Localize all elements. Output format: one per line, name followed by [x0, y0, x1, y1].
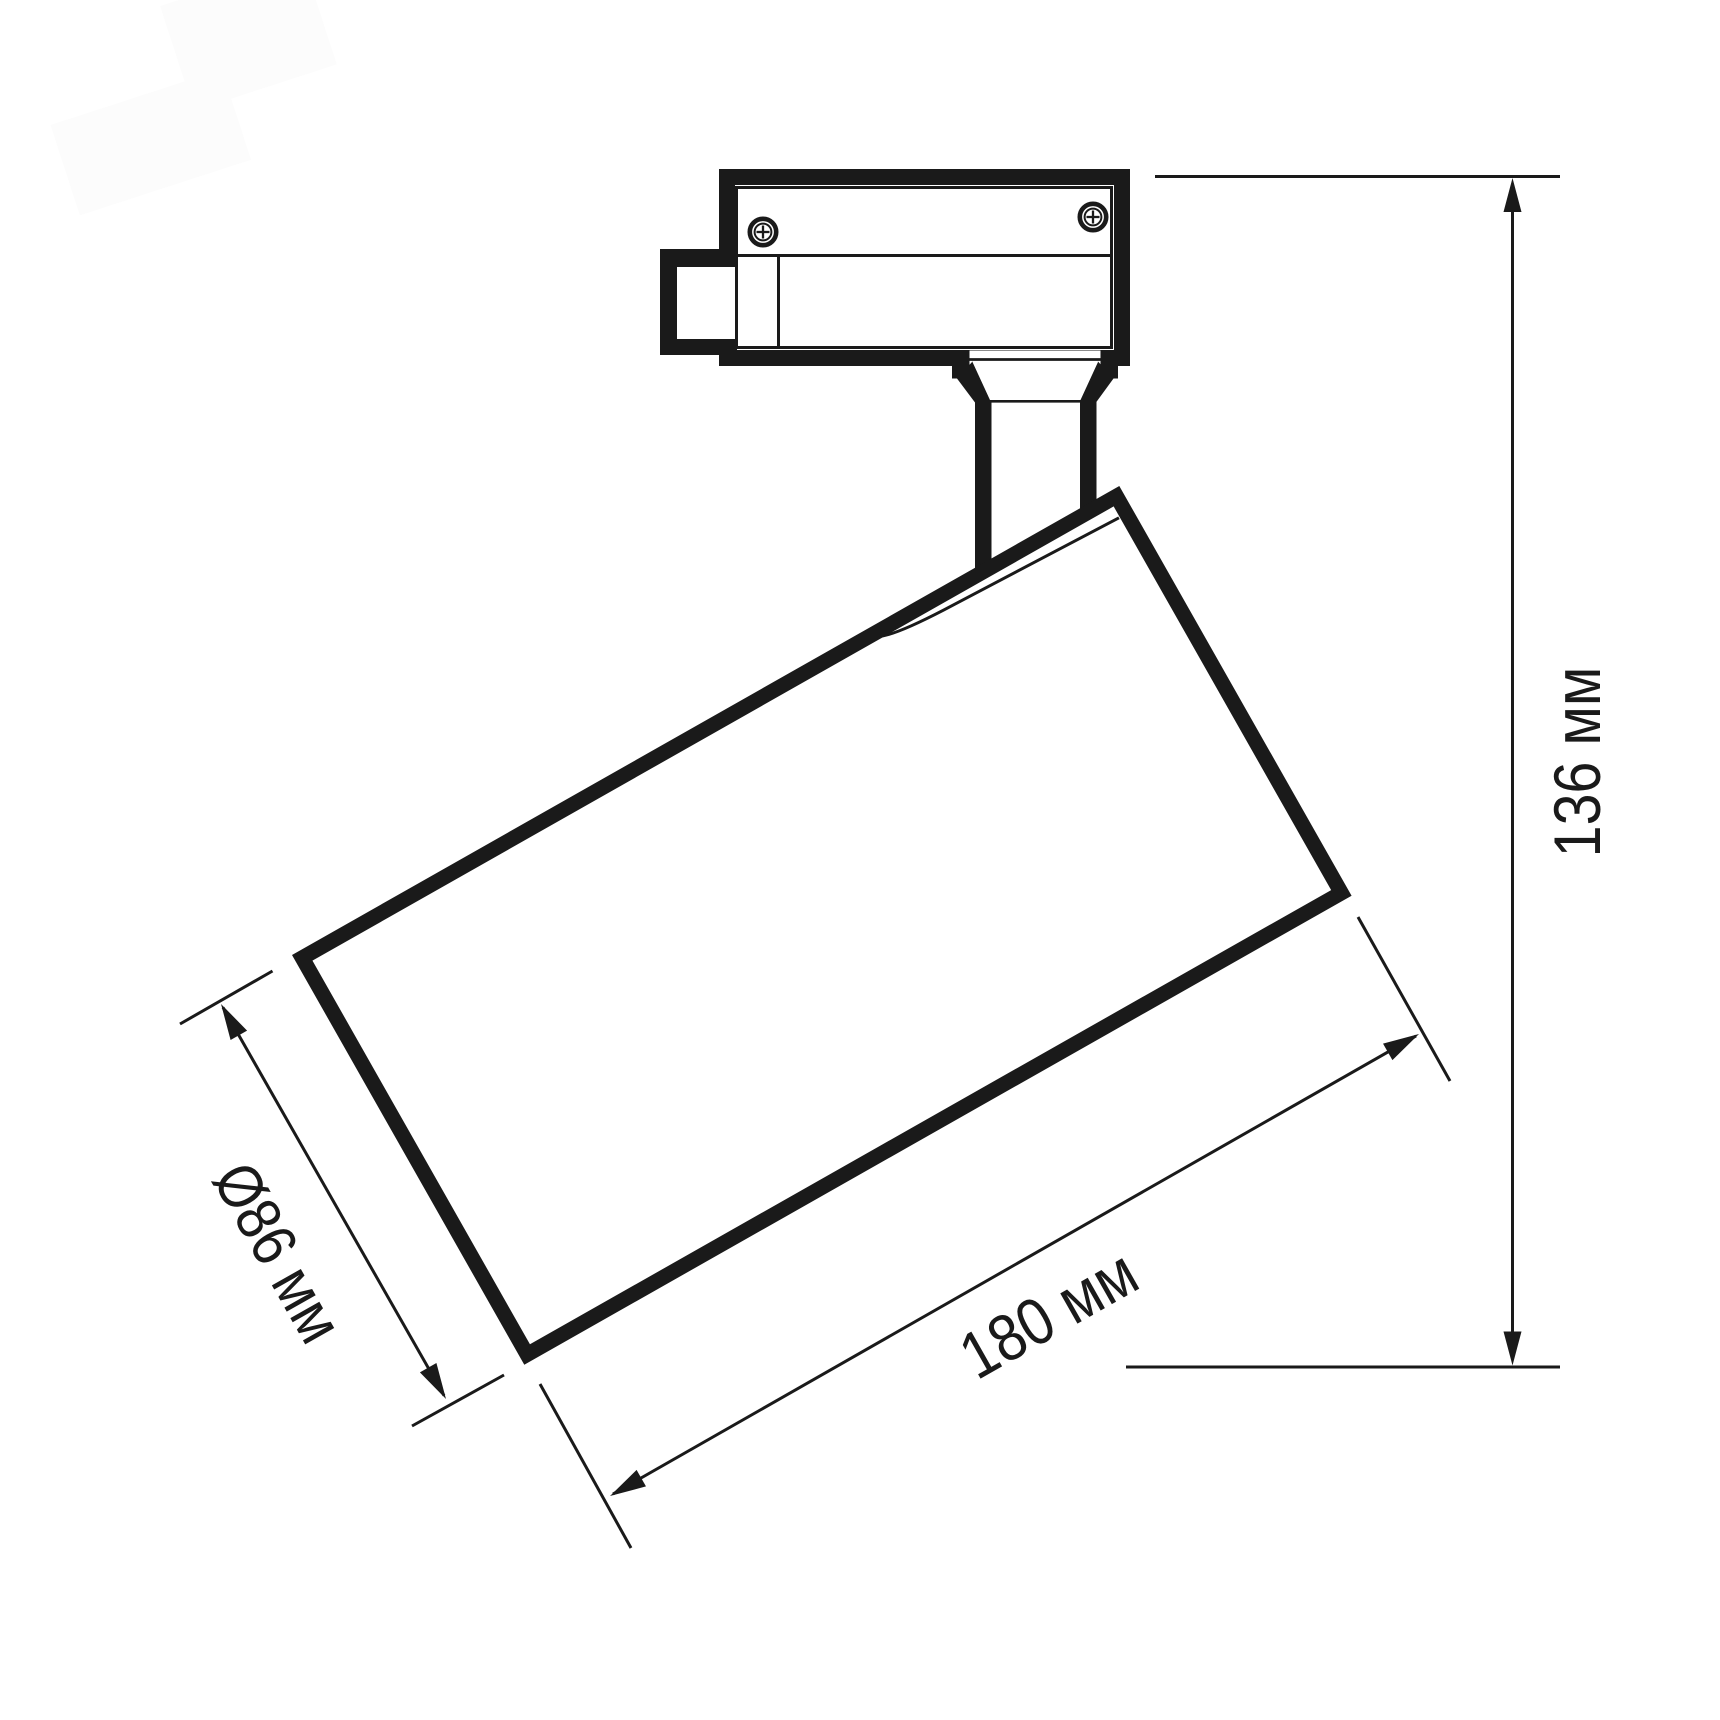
svg-text:136 мм: 136 мм — [1541, 667, 1615, 858]
